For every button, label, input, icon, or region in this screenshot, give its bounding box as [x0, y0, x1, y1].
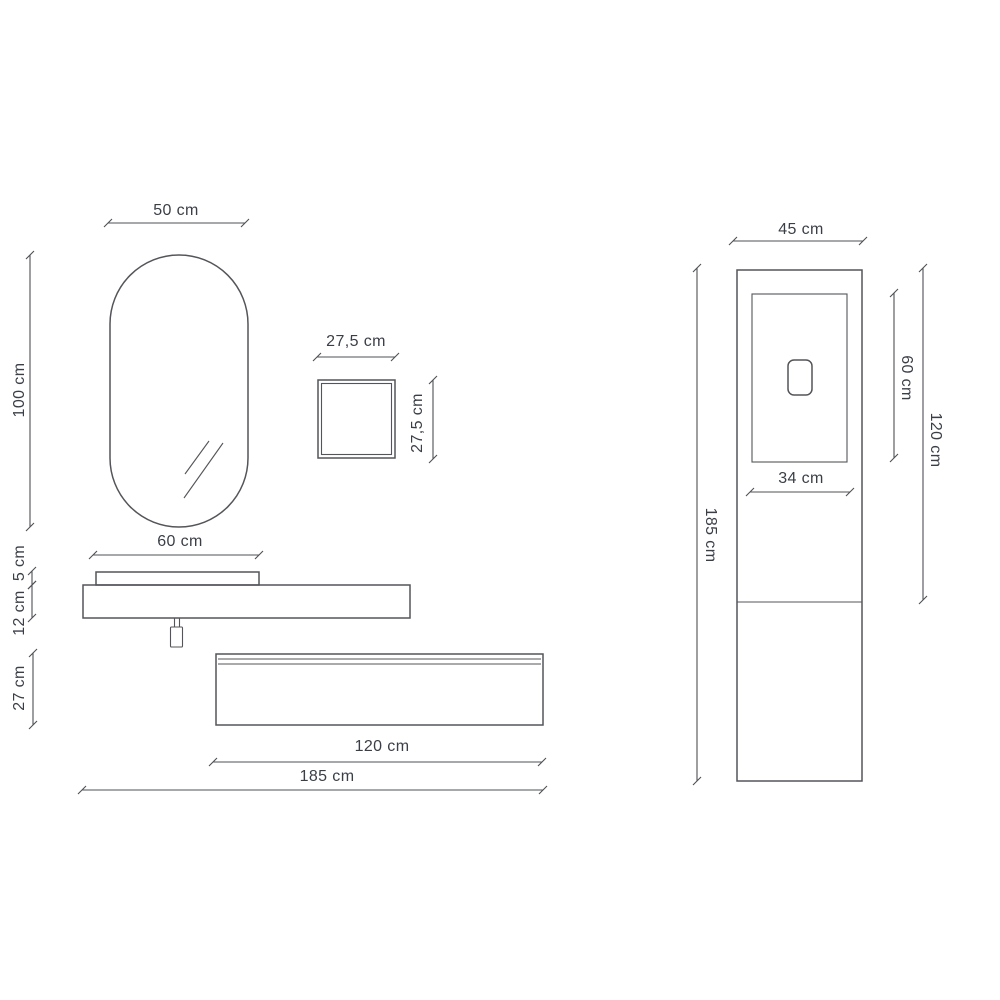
- dim-line-drawer-height: [29, 649, 37, 729]
- wall-box-inner-outline: [322, 384, 392, 455]
- drawer-unit-top-edge-lines: [218, 659, 541, 664]
- drawer-width-label: 120 cm: [355, 738, 410, 756]
- washbasin-width-label: 60 cm: [157, 533, 203, 551]
- mirror-reflection-lines-icon: [184, 441, 223, 498]
- wall-box-width-label: 27,5 cm: [326, 333, 386, 351]
- dim-line-countertop-thickness: [28, 581, 36, 622]
- column-outline: [737, 270, 862, 781]
- oval-mirror-outline: [110, 255, 248, 527]
- countertop-thickness-label: 12 cm: [11, 590, 29, 636]
- dim-line-total-width: [78, 786, 547, 794]
- mirror-width-label: 50 cm: [153, 202, 199, 220]
- column-width-label: 45 cm: [778, 221, 824, 239]
- wall-box-outer-outline: [318, 380, 395, 458]
- column-handle-outline: [788, 360, 812, 395]
- column-door-height-label: 60 cm: [897, 355, 915, 401]
- dim-line-drawer-width: [209, 758, 546, 766]
- column-group: [737, 270, 862, 781]
- siphon-neck-outline: [175, 618, 180, 627]
- dim-line-column-height: [693, 264, 701, 785]
- dim-line-column-door-width: [746, 488, 854, 496]
- drawing-linework: [0, 0, 1000, 1000]
- total-width-label: 185 cm: [300, 768, 355, 786]
- dim-line-wall-box-width: [313, 353, 399, 361]
- mirror-group: [110, 255, 248, 527]
- dim-line-wall-box-height: [429, 376, 437, 463]
- column-door-panel-outline: [752, 294, 847, 462]
- siphon-body-outline: [171, 627, 183, 647]
- countertop-outline: [83, 585, 410, 618]
- wall-box-group: [318, 380, 395, 458]
- drawer-unit-outline: [216, 654, 543, 725]
- drawer-height-label: 27 cm: [11, 665, 29, 711]
- mirror-height-label: 100 cm: [11, 363, 29, 418]
- column-upper-height-label: 120 cm: [926, 413, 944, 468]
- technical-drawing-canvas: 50 cm 100 cm 27,5 cm 27,5 cm 60 cm 5 cm …: [0, 0, 1000, 1000]
- washbasin-height-label: 5 cm: [11, 545, 29, 581]
- column-height-label: 185 cm: [701, 508, 719, 563]
- dim-line-mirror-width: [104, 219, 249, 227]
- column-door-width-label: 34 cm: [778, 470, 824, 488]
- vanity-group: [83, 572, 543, 725]
- washbasin-outline: [96, 572, 259, 585]
- wall-box-height-label: 27,5 cm: [409, 393, 427, 453]
- dim-line-washbasin-width: [89, 551, 263, 559]
